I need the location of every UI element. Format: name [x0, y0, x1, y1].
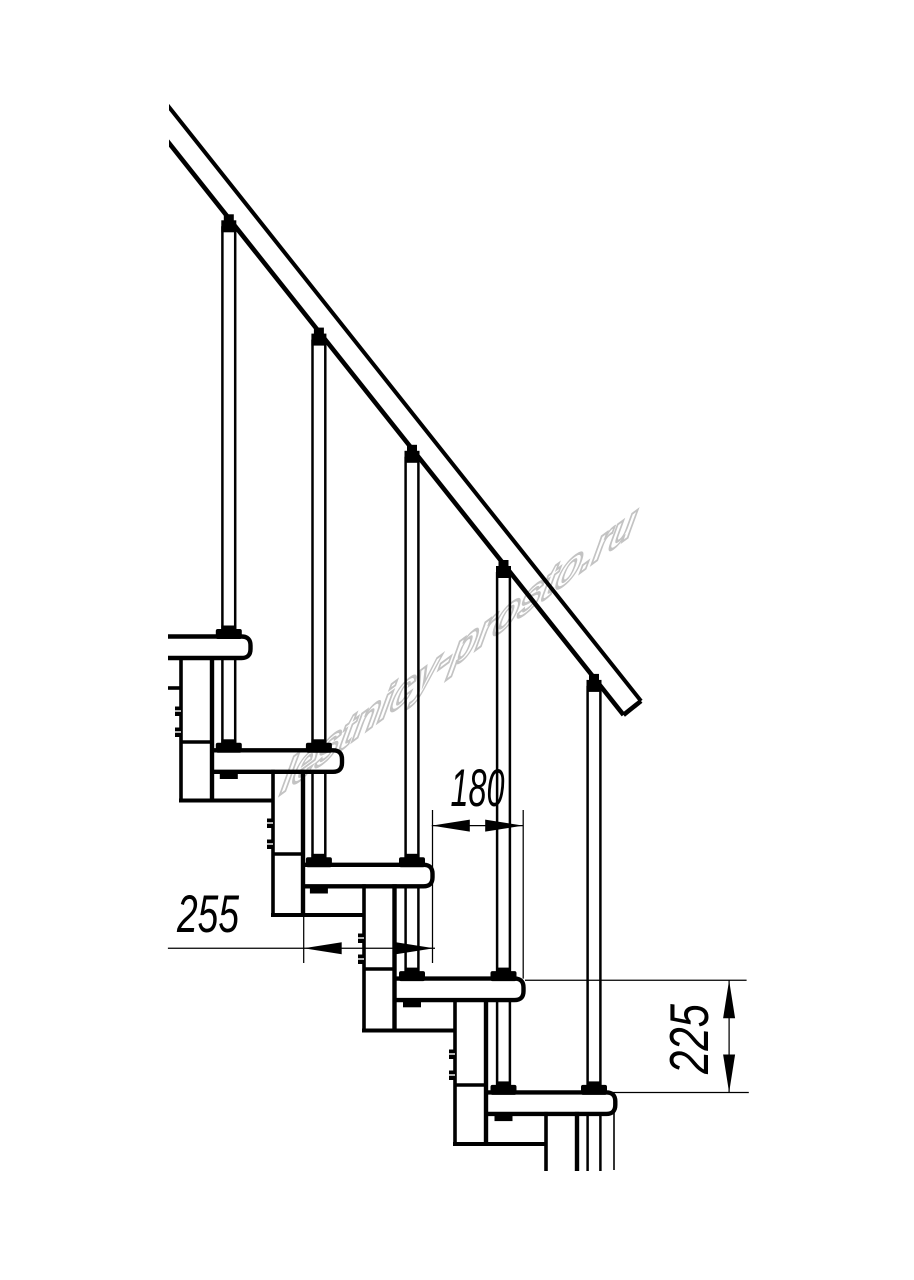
svg-text:225: 225	[658, 1004, 720, 1075]
svg-text:180: 180	[451, 759, 505, 818]
svg-text:255: 255	[176, 885, 239, 944]
